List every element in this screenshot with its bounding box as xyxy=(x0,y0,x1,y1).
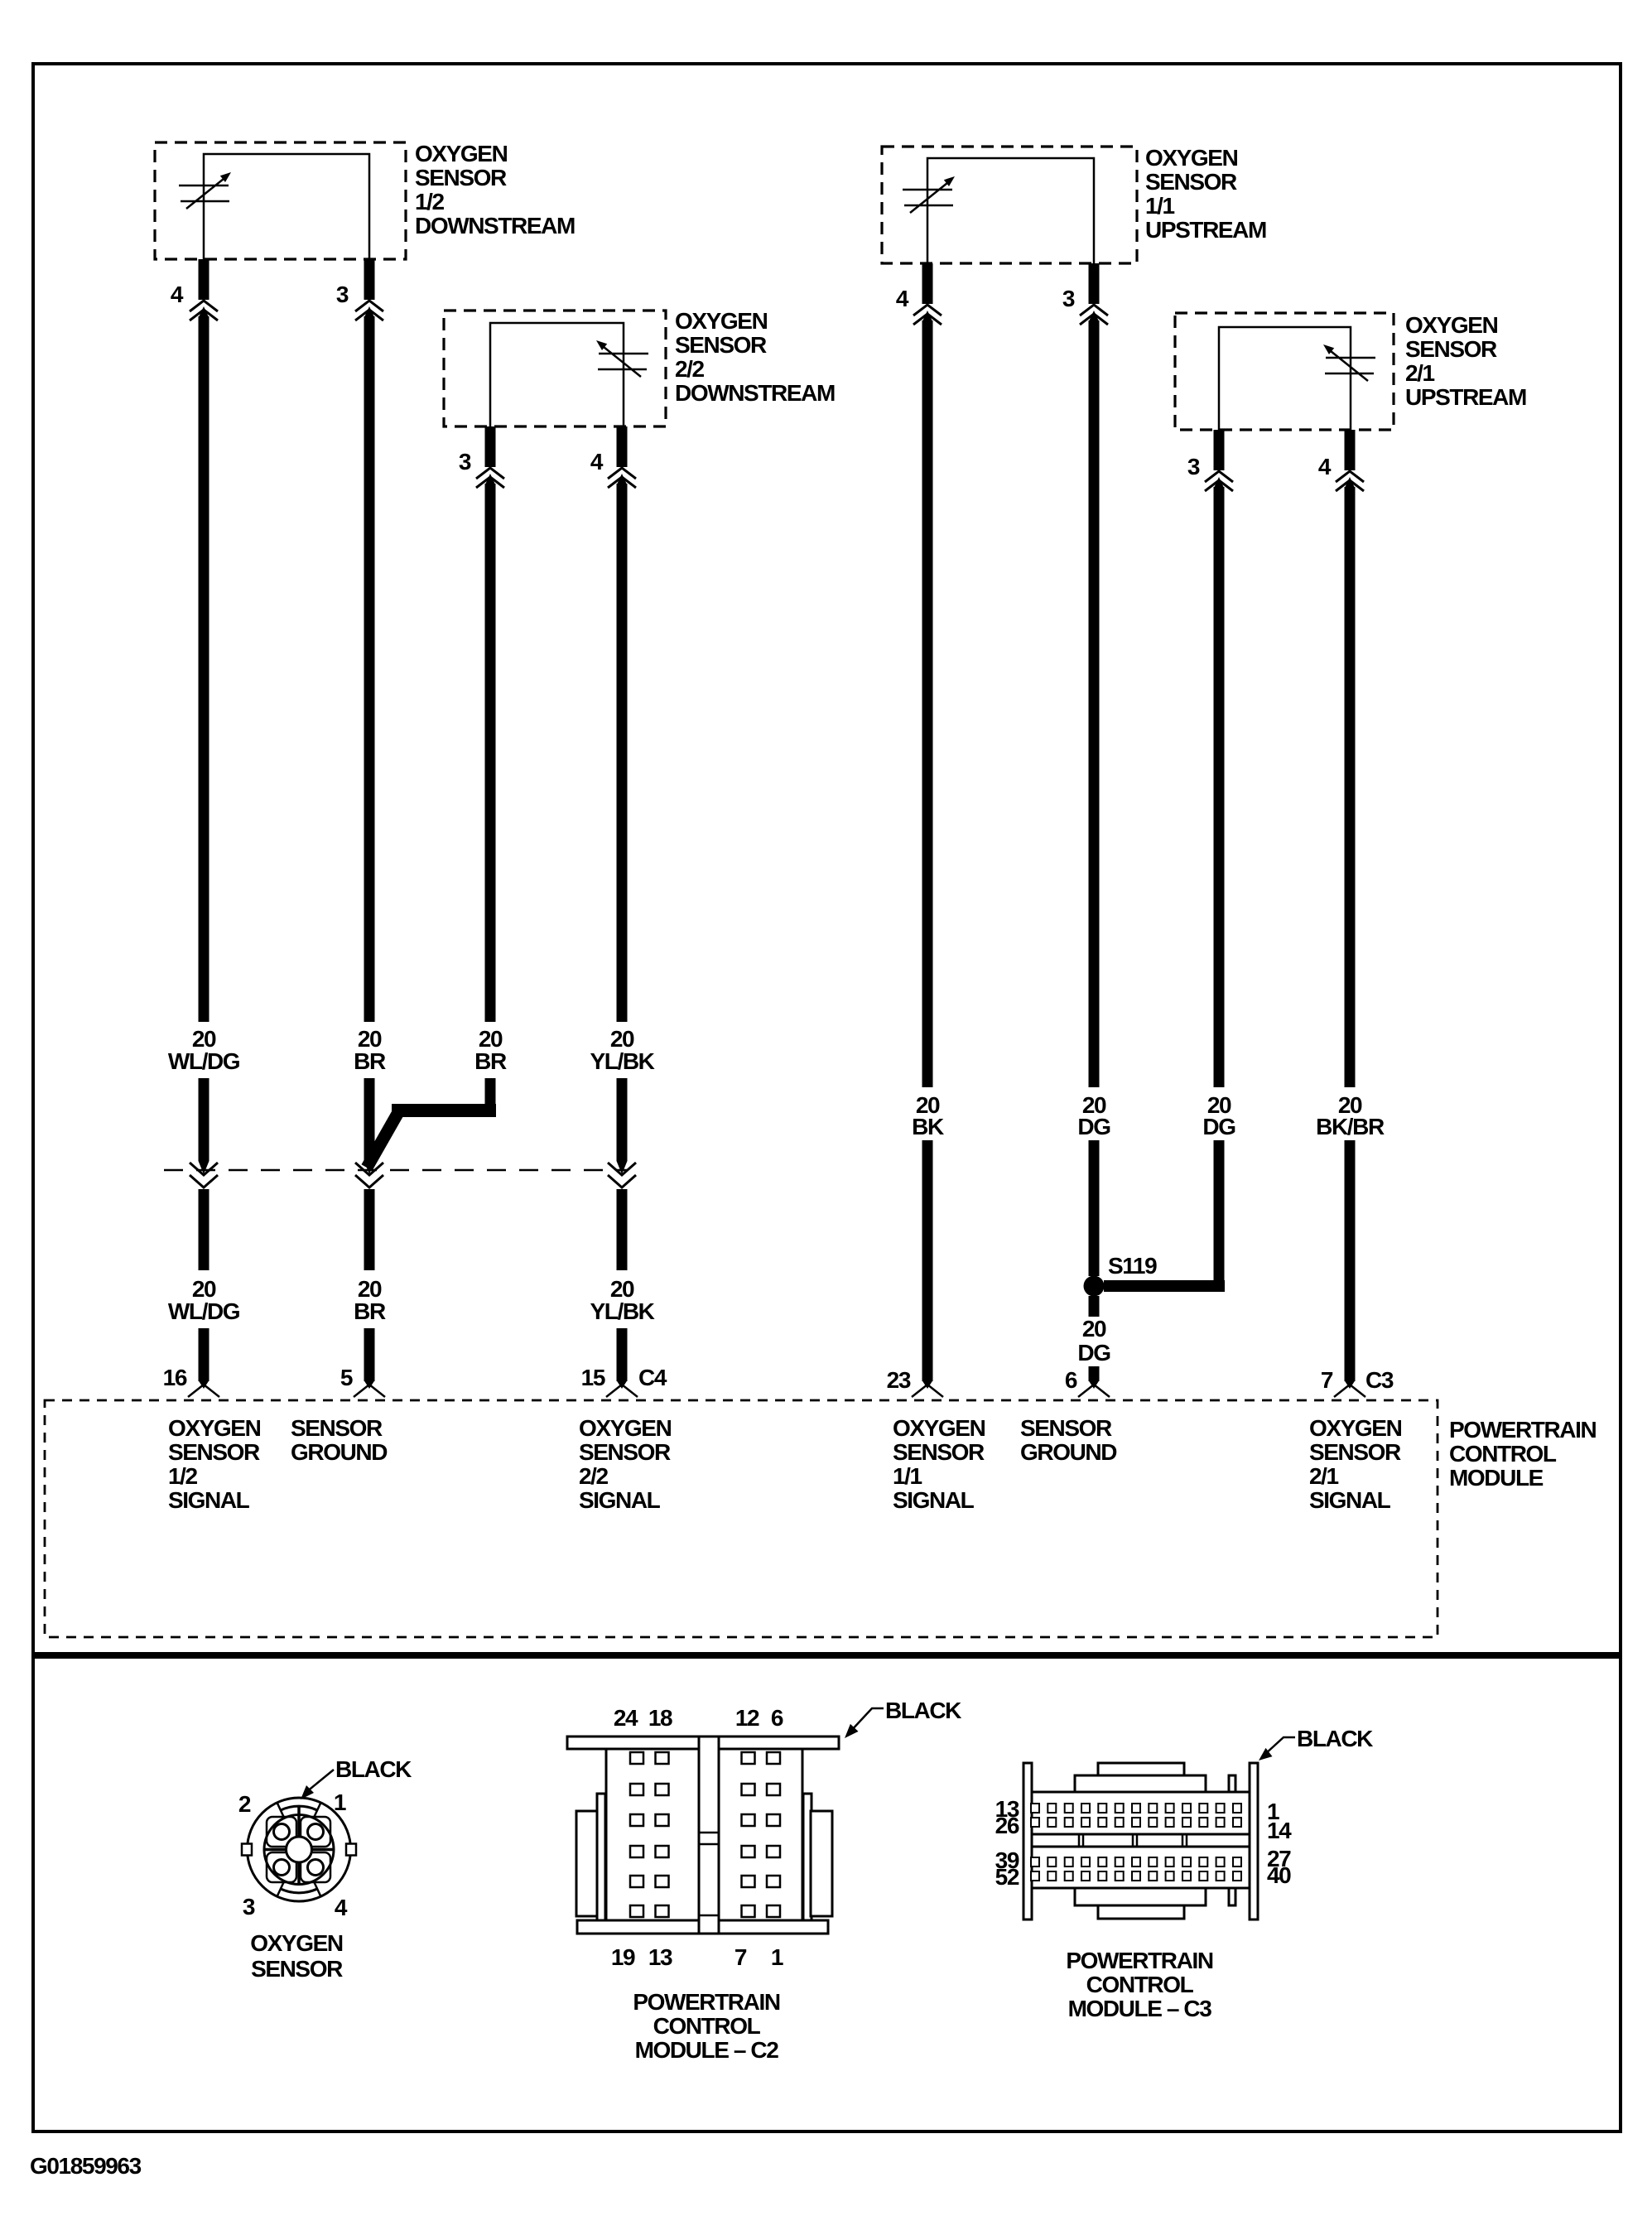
svg-text:1/2: 1/2 xyxy=(415,189,445,214)
svg-text:DG: DG xyxy=(1077,1114,1110,1139)
svg-text:52: 52 xyxy=(995,1864,1019,1890)
svg-text:OXYGEN: OXYGEN xyxy=(415,141,508,166)
svg-text:13: 13 xyxy=(648,1944,672,1970)
svg-text:1/1: 1/1 xyxy=(893,1463,922,1489)
svg-text:SENSOR: SENSOR xyxy=(291,1415,383,1441)
svg-text:2/1: 2/1 xyxy=(1309,1463,1339,1489)
svg-text:SENSOR: SENSOR xyxy=(415,165,507,190)
svg-text:SENSOR: SENSOR xyxy=(251,1956,343,1982)
svg-text:SIGNAL: SIGNAL xyxy=(579,1487,661,1513)
svg-text:15: 15 xyxy=(581,1365,605,1390)
svg-text:7: 7 xyxy=(1321,1367,1333,1393)
svg-text:BR: BR xyxy=(474,1048,507,1074)
svg-text:GROUND: GROUND xyxy=(291,1439,388,1465)
svg-text:BR: BR xyxy=(354,1048,386,1074)
svg-text:MODULE – C3: MODULE – C3 xyxy=(1068,1996,1212,2021)
svg-text:SENSOR: SENSOR xyxy=(675,332,767,358)
svg-text:18: 18 xyxy=(648,1705,672,1731)
svg-text:BLACK: BLACK xyxy=(335,1756,412,1782)
svg-text:BK: BK xyxy=(912,1114,944,1139)
svg-text:OXYGEN: OXYGEN xyxy=(1145,145,1238,171)
svg-text:OXYGEN: OXYGEN xyxy=(579,1415,672,1441)
svg-text:SENSOR: SENSOR xyxy=(1405,336,1497,362)
svg-text:3: 3 xyxy=(336,282,349,307)
svg-text:YL/BK: YL/BK xyxy=(590,1048,654,1074)
svg-text:DG: DG xyxy=(1077,1340,1110,1366)
svg-text:3: 3 xyxy=(243,1894,255,1919)
svg-text:WL/DG: WL/DG xyxy=(168,1048,240,1074)
svg-text:DOWNSTREAM: DOWNSTREAM xyxy=(675,380,835,406)
svg-text:4: 4 xyxy=(335,1895,348,1920)
svg-text:C3: C3 xyxy=(1365,1367,1394,1393)
svg-text:6: 6 xyxy=(1065,1367,1077,1393)
svg-text:2/2: 2/2 xyxy=(579,1463,609,1489)
svg-text:OXYGEN: OXYGEN xyxy=(1309,1415,1402,1441)
svg-text:4: 4 xyxy=(590,449,604,474)
svg-text:OXYGEN: OXYGEN xyxy=(675,308,768,334)
svg-text:2: 2 xyxy=(238,1791,251,1817)
svg-text:1/2: 1/2 xyxy=(168,1463,198,1489)
svg-text:YL/BK: YL/BK xyxy=(590,1298,654,1324)
svg-text:DOWNSTREAM: DOWNSTREAM xyxy=(415,213,575,238)
svg-text:3: 3 xyxy=(1187,454,1200,479)
svg-text:S119: S119 xyxy=(1108,1253,1157,1279)
svg-text:DG: DG xyxy=(1202,1114,1235,1139)
svg-text:23: 23 xyxy=(887,1367,911,1393)
svg-text:40: 40 xyxy=(1267,1862,1291,1888)
svg-text:6: 6 xyxy=(771,1705,783,1731)
svg-text:7: 7 xyxy=(734,1944,747,1970)
svg-text:SIGNAL: SIGNAL xyxy=(1309,1487,1391,1513)
svg-text:3: 3 xyxy=(1062,286,1075,311)
svg-text:G01859963: G01859963 xyxy=(30,2153,142,2179)
svg-text:2/2: 2/2 xyxy=(675,356,705,382)
svg-text:19: 19 xyxy=(611,1944,635,1970)
svg-text:14: 14 xyxy=(1267,1818,1292,1843)
svg-text:OXYGEN: OXYGEN xyxy=(250,1930,343,1956)
svg-text:4: 4 xyxy=(1318,454,1332,479)
svg-text:5: 5 xyxy=(340,1365,353,1390)
svg-text:OXYGEN: OXYGEN xyxy=(893,1415,985,1441)
svg-text:GROUND: GROUND xyxy=(1020,1439,1117,1465)
svg-text:SENSOR: SENSOR xyxy=(579,1439,671,1465)
svg-text:CONTROL: CONTROL xyxy=(1086,1972,1194,1997)
svg-text:POWERTRAIN: POWERTRAIN xyxy=(1066,1948,1213,1973)
svg-text:MODULE – C2: MODULE – C2 xyxy=(635,2037,779,2063)
svg-text:16: 16 xyxy=(163,1365,187,1390)
svg-text:1: 1 xyxy=(771,1944,783,1970)
svg-text:OXYGEN: OXYGEN xyxy=(168,1415,261,1441)
svg-text:CONTROL: CONTROL xyxy=(1449,1441,1557,1467)
svg-text:OXYGEN: OXYGEN xyxy=(1405,312,1498,338)
svg-text:BK/BR: BK/BR xyxy=(1316,1114,1385,1139)
svg-text:24: 24 xyxy=(614,1705,638,1731)
svg-text:MODULE: MODULE xyxy=(1449,1465,1544,1491)
svg-text:UPSTREAM: UPSTREAM xyxy=(1405,384,1526,410)
svg-text:SENSOR: SENSOR xyxy=(168,1439,260,1465)
svg-text:SENSOR: SENSOR xyxy=(893,1439,985,1465)
svg-text:WL/DG: WL/DG xyxy=(168,1298,240,1324)
svg-text:20: 20 xyxy=(1082,1316,1106,1341)
svg-text:SENSOR: SENSOR xyxy=(1145,169,1237,195)
svg-text:BLACK: BLACK xyxy=(1297,1726,1373,1751)
svg-text:CONTROL: CONTROL xyxy=(653,2013,761,2039)
svg-text:3: 3 xyxy=(459,449,471,474)
svg-text:C4: C4 xyxy=(638,1365,667,1390)
svg-text:4: 4 xyxy=(896,286,909,311)
svg-text:1/1: 1/1 xyxy=(1145,193,1175,219)
svg-text:26: 26 xyxy=(995,1813,1019,1838)
svg-text:SIGNAL: SIGNAL xyxy=(893,1487,975,1513)
svg-text:UPSTREAM: UPSTREAM xyxy=(1145,217,1266,243)
svg-text:1: 1 xyxy=(334,1789,346,1815)
svg-text:BR: BR xyxy=(354,1298,386,1324)
svg-text:SENSOR: SENSOR xyxy=(1309,1439,1401,1465)
svg-text:4: 4 xyxy=(171,282,184,307)
svg-text:SENSOR: SENSOR xyxy=(1020,1415,1112,1441)
svg-text:POWERTRAIN: POWERTRAIN xyxy=(633,1989,780,2015)
svg-text:SIGNAL: SIGNAL xyxy=(168,1487,250,1513)
svg-text:POWERTRAIN: POWERTRAIN xyxy=(1449,1417,1597,1443)
svg-text:12: 12 xyxy=(735,1705,759,1731)
svg-text:BLACK: BLACK xyxy=(885,1698,961,1723)
svg-text:2/1: 2/1 xyxy=(1405,360,1435,386)
